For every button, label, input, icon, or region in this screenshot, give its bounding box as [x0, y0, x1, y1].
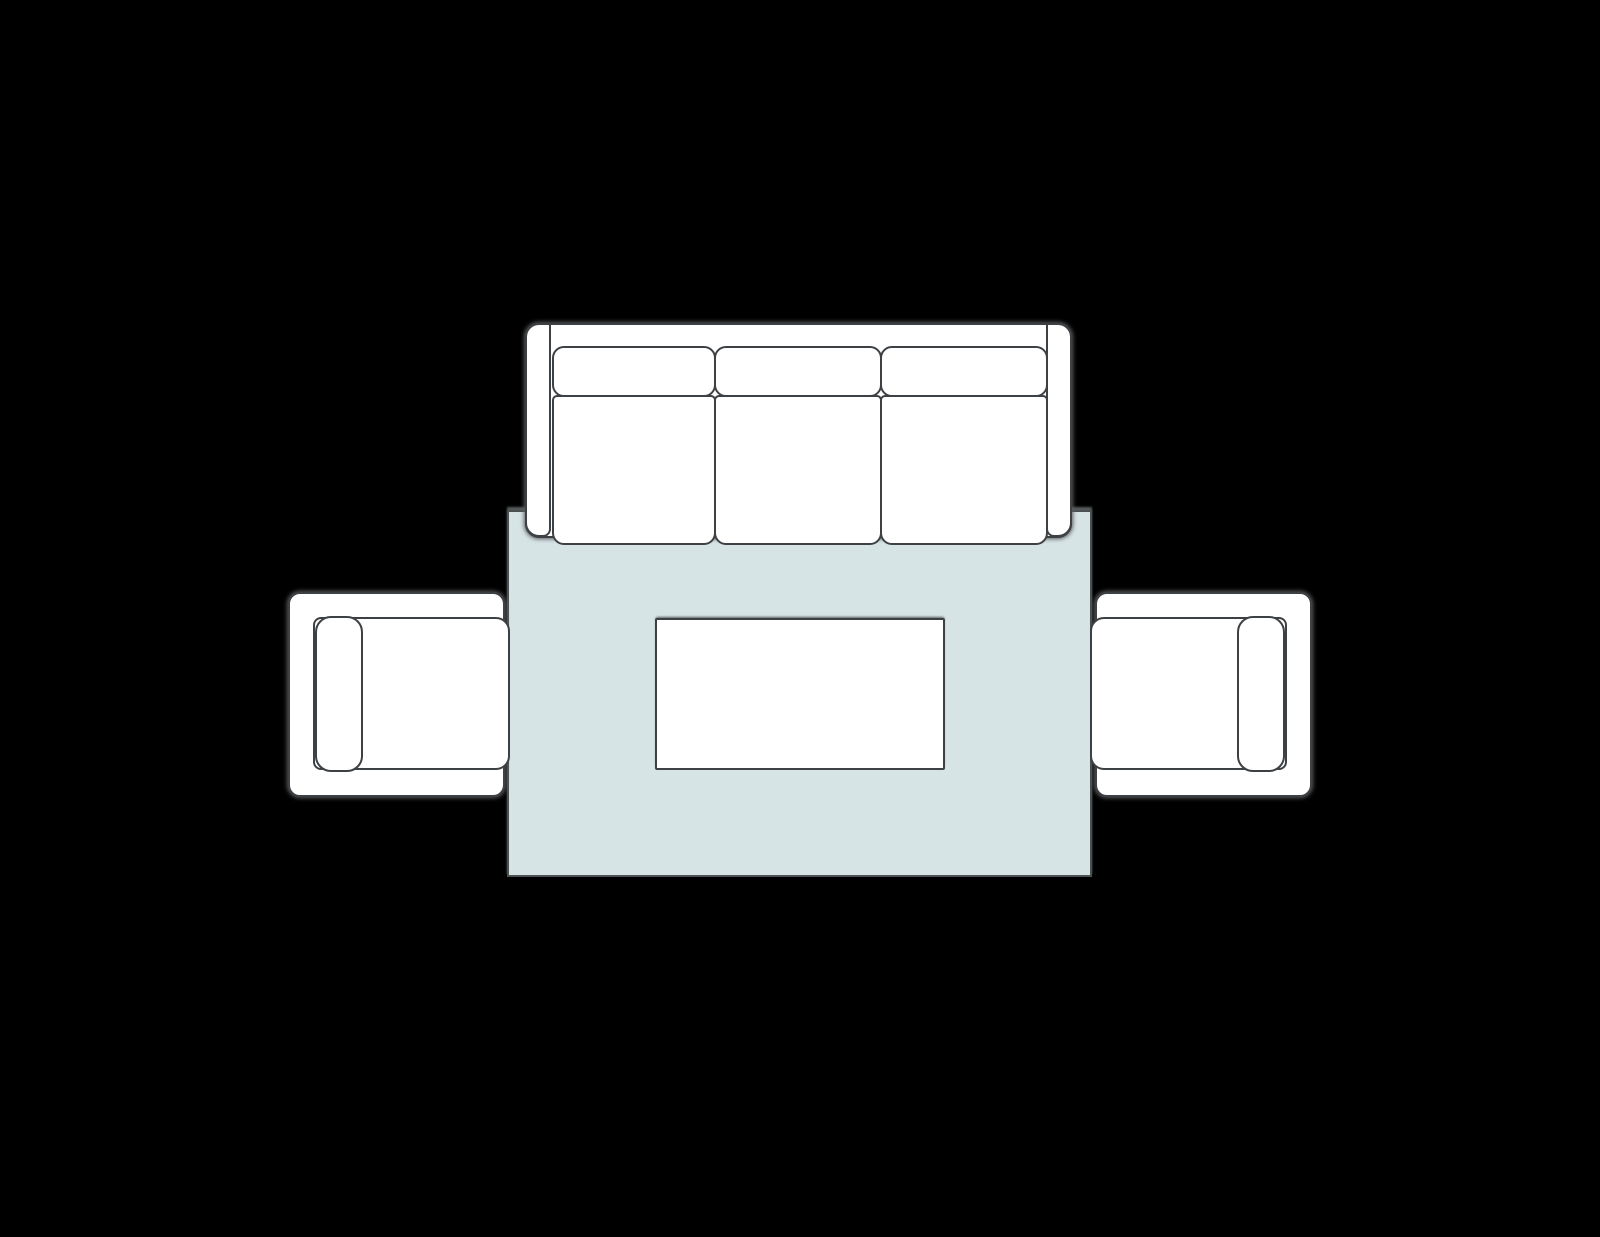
sofa-right-arm [1046, 323, 1072, 537]
armchair-right-back-cushion [1237, 616, 1285, 772]
sofa-back-cushion [714, 346, 882, 397]
coffee-table[interactable] [655, 618, 945, 770]
sofa-seat-cushion [552, 395, 716, 545]
sofa-seat-cushion [880, 395, 1048, 545]
armchair-left-back-cushion [315, 616, 363, 772]
sofa-seat-cushion [714, 395, 882, 545]
sofa-back-cushion [880, 346, 1048, 397]
sofa-left-arm [525, 323, 551, 537]
sofa-back-cushion [552, 346, 716, 397]
floorplan-canvas [0, 0, 1600, 1237]
